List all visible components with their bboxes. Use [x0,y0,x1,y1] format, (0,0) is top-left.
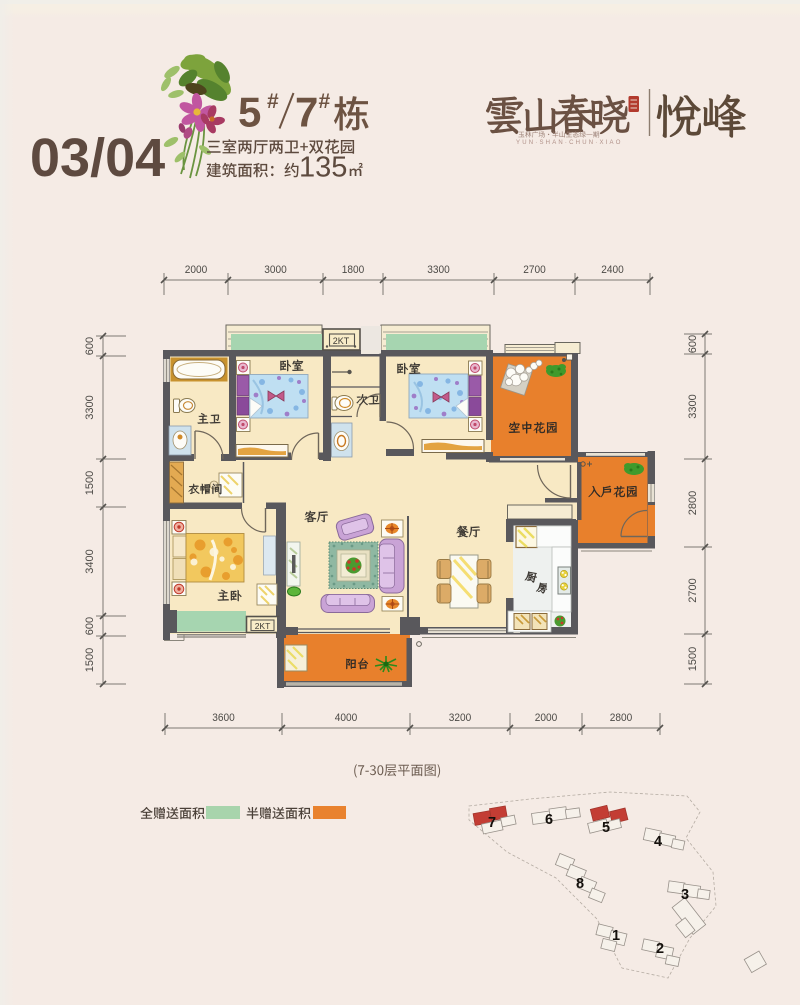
svg-text:3: 3 [681,887,689,903]
svg-text:1500: 1500 [84,471,96,495]
svg-text:#: # [319,90,331,113]
svg-text:2800: 2800 [687,491,699,515]
svg-text:1500: 1500 [84,648,96,672]
svg-text:600: 600 [687,335,699,353]
svg-text:3400: 3400 [84,549,96,573]
svg-text:4: 4 [654,834,662,850]
svg-text:7: 7 [295,89,318,136]
svg-text:1500: 1500 [687,647,699,671]
svg-text:2: 2 [656,941,664,957]
svg-text:600: 600 [84,617,96,635]
svg-text:3600: 3600 [212,712,235,724]
svg-text:2800: 2800 [610,712,633,724]
svg-text:2700: 2700 [687,578,699,602]
svg-text:4000: 4000 [335,712,358,724]
svg-text:03/04: 03/04 [30,128,165,188]
svg-text:135: 135 [299,152,347,184]
svg-text:1800: 1800 [342,264,365,276]
svg-text:2400: 2400 [601,264,624,276]
svg-text:8: 8 [576,876,584,892]
svg-text:3300: 3300 [687,394,699,418]
svg-text:2000: 2000 [535,712,558,724]
svg-text:YUN·SHAN·CHUN·XIAO: YUN·SHAN·CHUN·XIAO [516,140,623,146]
svg-text:2700: 2700 [523,264,546,276]
svg-text:6: 6 [545,812,553,828]
svg-text:5: 5 [602,820,610,836]
svg-text:3000: 3000 [264,264,287,276]
svg-text:3200: 3200 [449,712,472,724]
svg-text:1: 1 [612,928,620,944]
svg-text:#: # [267,90,279,113]
svg-text:2KT: 2KT [333,336,350,346]
svg-text:600: 600 [84,337,96,355]
svg-text:3300: 3300 [427,264,450,276]
svg-text:2000: 2000 [185,264,208,276]
svg-text:2KT: 2KT [255,621,271,631]
svg-text:7: 7 [488,815,496,831]
svg-text:3300: 3300 [84,395,96,419]
svg-text:5: 5 [238,89,261,136]
